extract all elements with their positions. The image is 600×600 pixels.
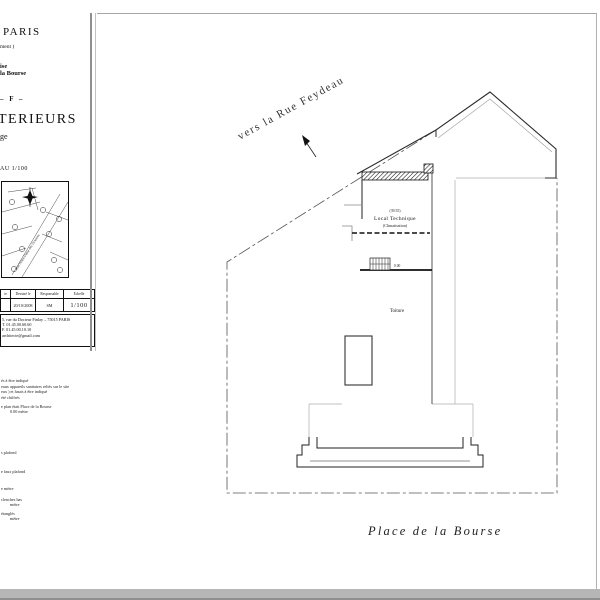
legend-note-line: 0.00 mètre [1,409,28,414]
title-block-scale-note: AU 1/100 [0,166,28,172]
title-block-drawing-subtitle: ge [0,132,8,141]
stair-grille [370,258,390,270]
location-map-drawing: Rue Notre-Dame des Victoires [2,182,68,277]
contact-email: architecte@gmail.com [2,333,94,338]
contact-box: 5, rue du Docteur Finlay – 75015 PARIS T… [0,314,95,347]
level-zero-label: 0.00 [394,264,400,268]
legend-paragraph-line: été chiffrés [1,395,20,400]
area-label: Toiture [390,309,405,314]
legend-item-value: mètre [1,516,20,521]
direction-arrow [302,135,316,157]
building-roof-walls [357,92,556,178]
table-cell-date: 20/10/2008 [11,299,36,311]
title-block-city: PARIS [3,26,41,38]
title-block-permit-ref: – F – [0,95,25,103]
table-header-2: Responsable [36,290,64,299]
legend-paragraph-line: eux ) et hauts à être indiqué [1,389,47,394]
street-label-top: vers la Rue Feydeau [236,74,347,143]
legend-item-value: mètre [1,502,20,507]
portico-footprint [297,437,483,467]
room-level-label: (39.55) [389,209,401,213]
room-sublabel: (Climatisation) [383,223,408,228]
legend-paragraph-line: és à être indiqué [1,378,28,383]
roof-shaft [345,336,372,385]
table-header-1: Dessiné le [11,290,36,299]
title-block-district: ment ) [0,44,14,50]
title-block-project-line2: la Bourse [0,70,26,77]
street-label-bottom: Place de la Bourse [367,524,502,538]
drawing-sheet: vers la Rue Feydeau (39.55) Local Techni… [0,0,600,600]
legend-paragraph-line: eaux appareils sanitaires reliés sur le … [1,384,69,389]
title-block-border-inner [95,13,96,351]
title-block-drawing-title: TERIEURS [0,112,77,128]
north-compass-icon [22,187,38,207]
legend-item: e mètre [1,486,13,491]
title-block-table: te Dessiné le Responsable Echelle 20/10/… [0,289,95,312]
room-label: Local Technique [374,216,416,222]
location-map: Rue Notre-Dame des Victoires [1,181,69,278]
title-block-border-outer [90,13,92,351]
title-block-project-line1: ise [0,63,7,70]
map-street-label: Rue Notre-Dame des Victoires [14,233,40,271]
table-cell-0 [1,299,11,311]
legend-item: e faux plafond [1,469,25,474]
table-header-0: te [1,290,11,299]
legend-item: s plafond [1,450,16,455]
table-cell-responsable: SM [36,299,64,311]
interior-light-walls [309,178,545,437]
title-block: PARIS ment ) ise la Bourse – F – TERIEUR… [0,13,97,351]
